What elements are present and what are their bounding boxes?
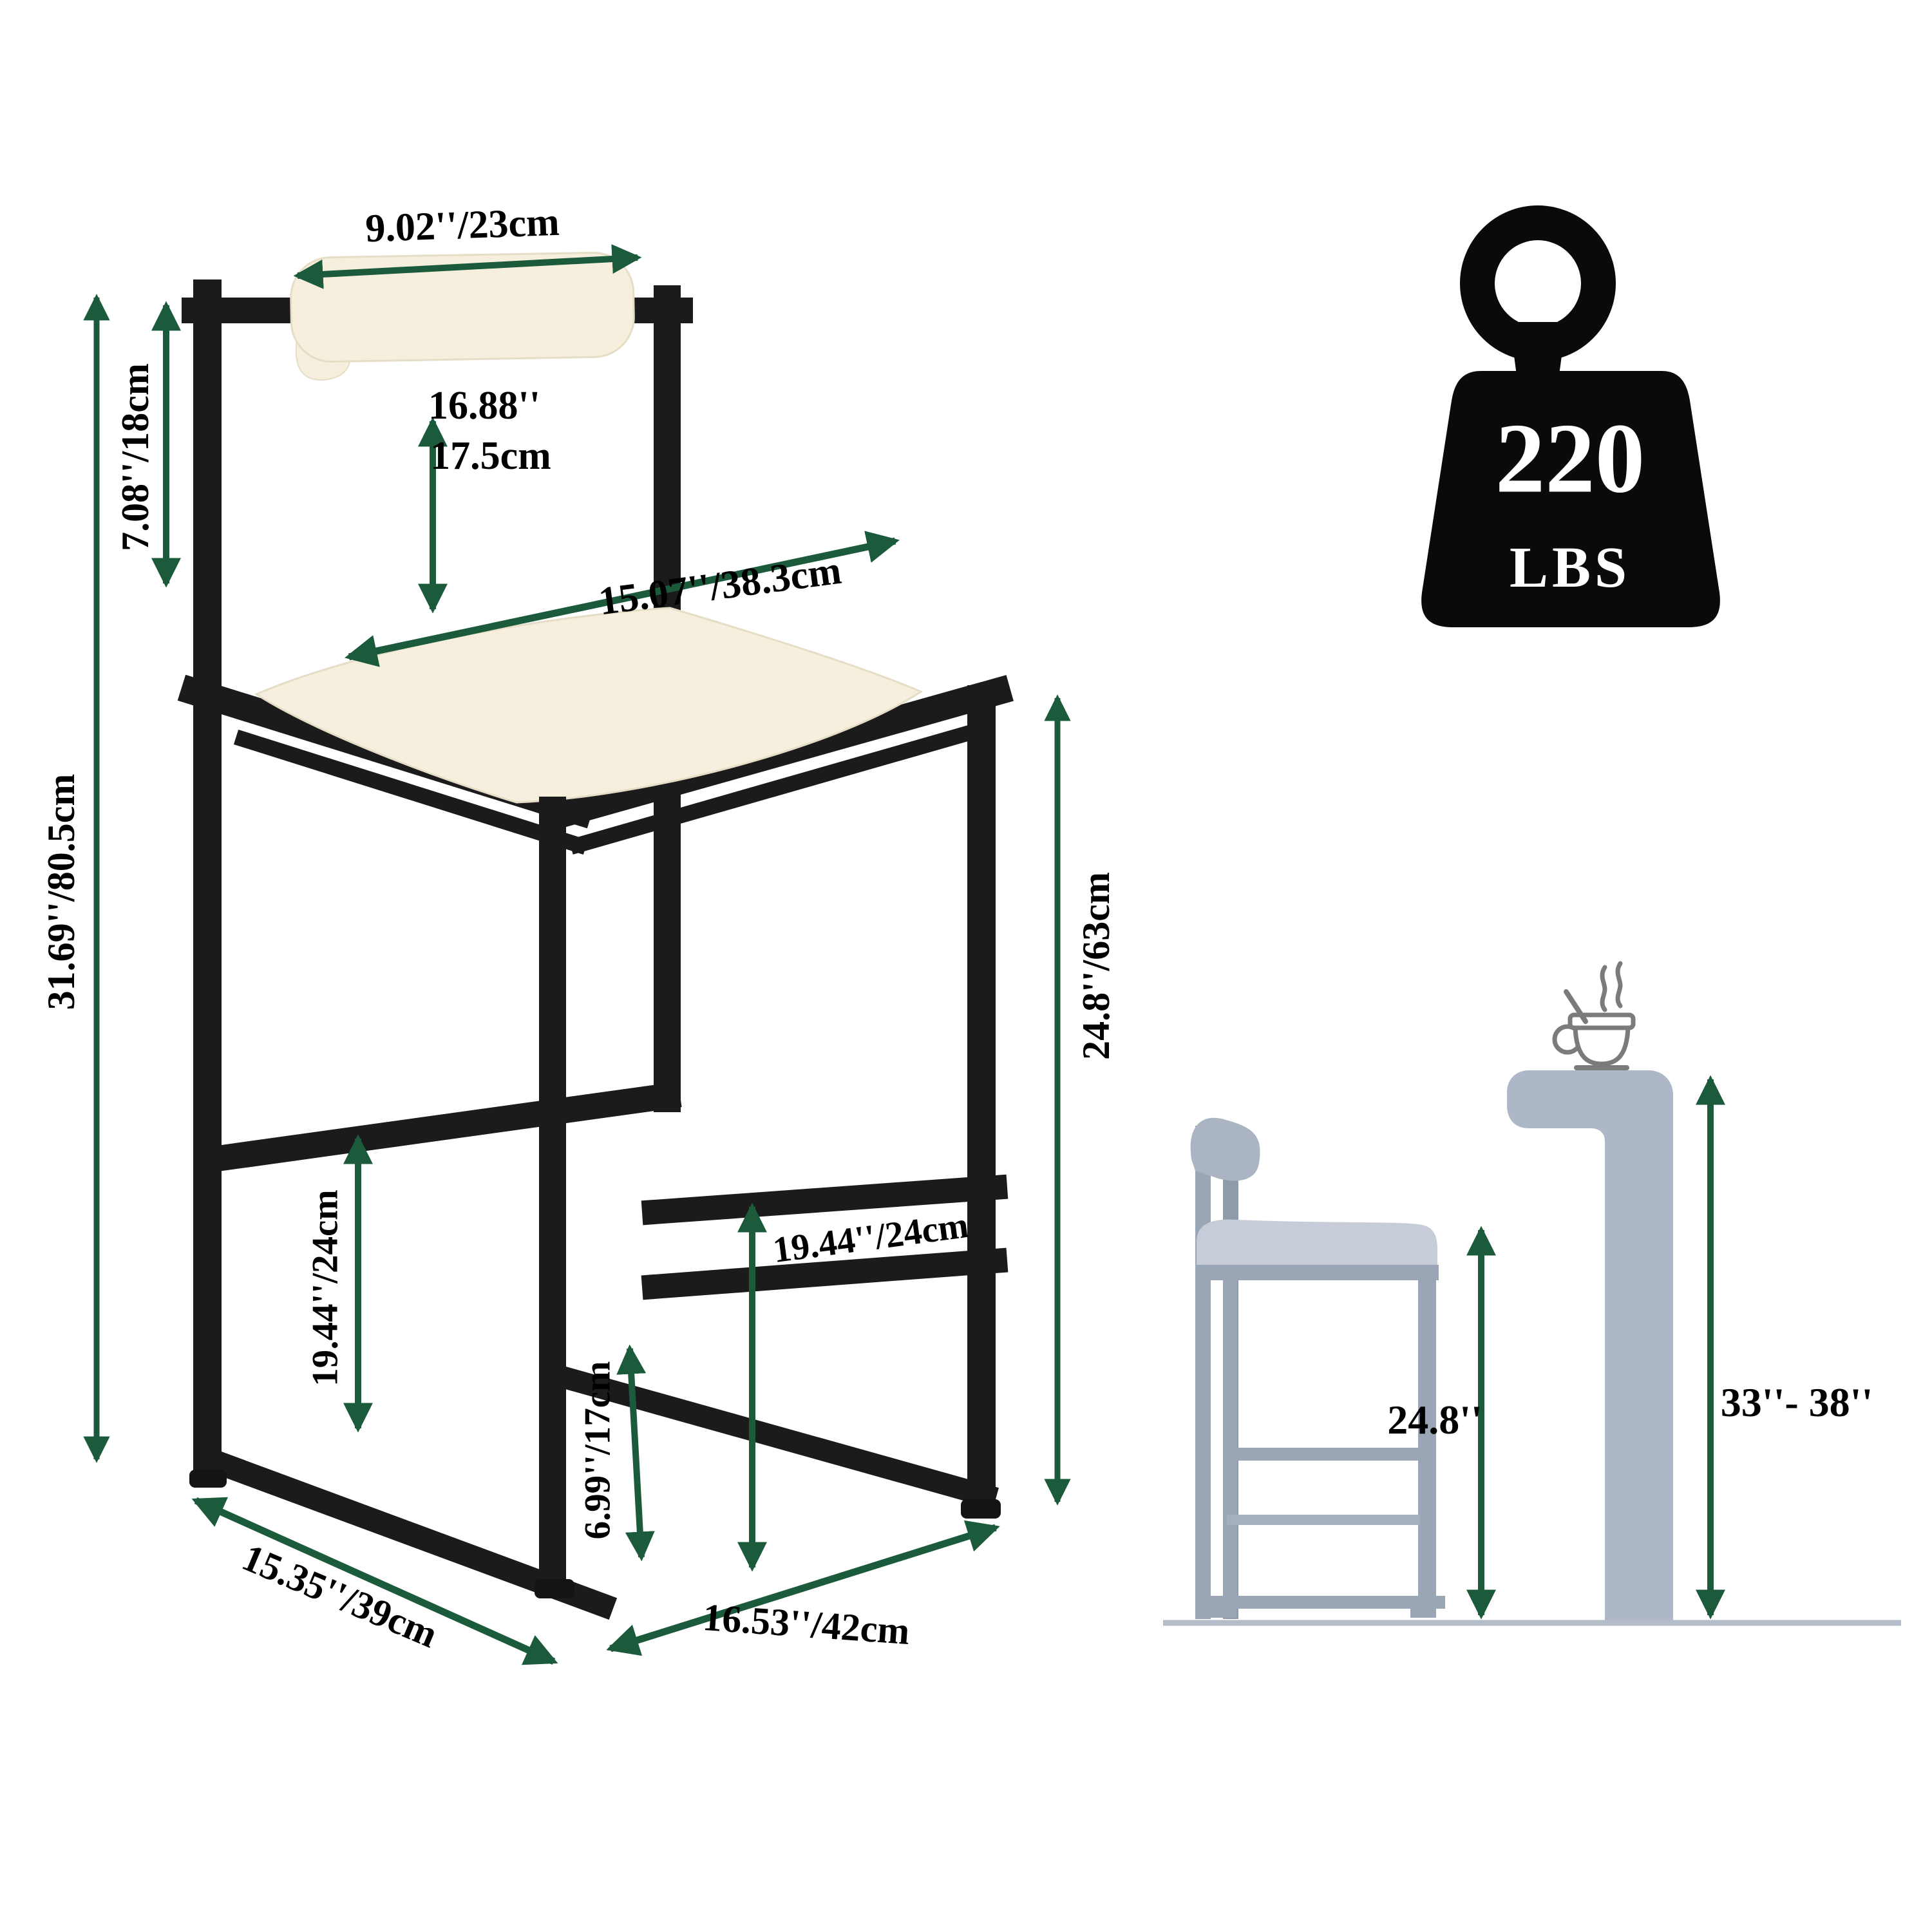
arrow-lower-footrest [630, 1349, 641, 1557]
diagram-canvas: 9.02''/23cm 7.08''/18cm 16.88'' 17.5cm 1… [0, 0, 1932, 1932]
dim-seat-to-backrest-inches: 16.88'' [428, 386, 540, 426]
side-dimension-arrows [1481, 1079, 1710, 1615]
dim-seat-height: 24.8''/63cm [1077, 872, 1115, 1060]
dim-total-height: 31.69''/80.5cm [42, 774, 80, 1010]
weight-capacity-value: 220 [1495, 409, 1645, 509]
side-seat-height-label: 24.8'' [1387, 1399, 1482, 1441]
coffee-cup-icon [1555, 963, 1633, 1068]
bar-counter [1507, 1070, 1673, 1622]
weight-capacity-unit: LBS [1510, 539, 1631, 597]
diagram-artwork [0, 0, 1932, 1932]
dim-backrest-width: 9.02''/23cm [365, 202, 560, 249]
dim-seat-to-backrest-cm: 17.5cm [430, 436, 551, 476]
stool-side-silhouette [1191, 1118, 1445, 1619]
dim-footrest-left: 19.44''/24cm [307, 1189, 344, 1387]
dim-backrest-height: 7.08''/18cm [116, 363, 155, 551]
dim-lower-footrest: 6.99''/17cm [580, 1361, 616, 1539]
side-bar-height-label: 33''- 38'' [1721, 1382, 1873, 1423]
